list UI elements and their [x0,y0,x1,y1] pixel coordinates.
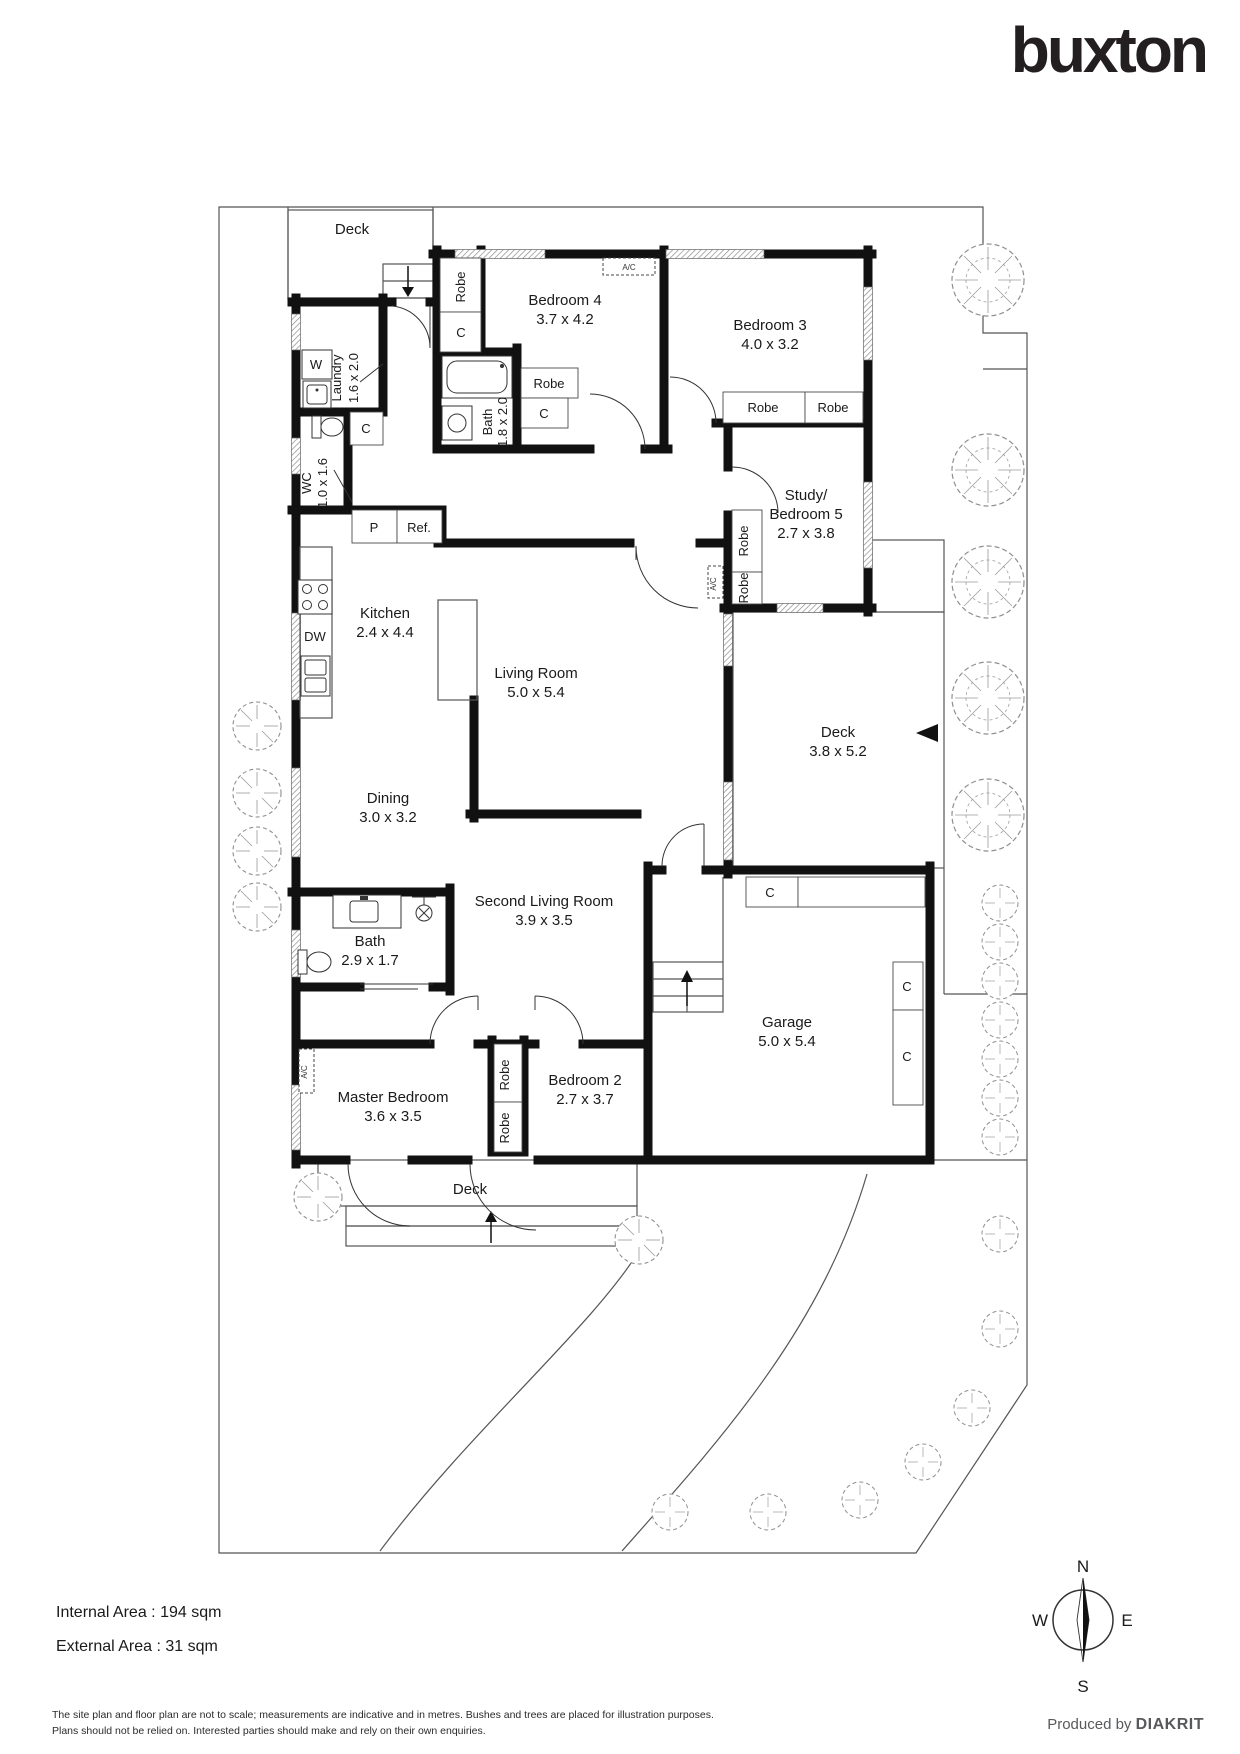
robe-label-study-1: Robe [736,525,751,556]
external-area: External Area : 31 sqm [56,1638,221,1656]
bath-top-dims: 1.8 x 2.0 [495,397,510,447]
robe-label-entry: Robe [453,271,468,302]
compass: N W E S [1032,1557,1133,1696]
study-label-1: Study/ [785,487,828,504]
toilet-icon [298,950,331,974]
fridge-label: Ref. [407,520,431,535]
wc-toilet-icon [312,416,343,438]
c-label-garage-right-1: C [902,979,911,994]
garage-steps [653,877,723,1012]
area-summary: Internal Area : 194 sqm External Area : … [56,1604,221,1672]
deck-right-label: Deck [821,724,856,741]
bedroom3-label: Bedroom 3 [733,317,806,334]
bedroom4-dims: 3.7 x 4.2 [536,311,594,328]
compass-south: S [1077,1677,1088,1696]
robe-label-bed3-2: Robe [817,400,848,415]
deck-bottom-label: Deck [453,1181,488,1198]
master-dims: 3.6 x 3.5 [364,1108,422,1125]
dining-label: Dining [367,790,410,807]
floorplan-page: buxton [0,0,1240,1754]
kitchen-island [438,600,477,700]
garage-dims: 5.0 x 5.4 [758,1033,816,1050]
entry-arrow-icon [916,724,938,742]
laundry-dims: 1.6 x 2.0 [346,353,361,403]
kitchen-sink-icon [301,656,330,696]
c-label-entry: C [456,325,465,340]
bedroom2-dims: 2.7 x 3.7 [556,1091,614,1108]
study-label-2: Bedroom 5 [769,506,842,523]
c-label-wc: C [361,421,370,436]
robe-label-study-2: Robe [736,572,751,603]
bath-top-label: Bath [480,409,495,436]
compass-east: E [1121,1611,1132,1630]
bedroom4-label: Bedroom 4 [528,292,601,309]
laundry-trough-icon [303,381,331,408]
washer-label: W [310,357,323,372]
garage-up-arrow-icon [681,970,693,1006]
disclaimer: The site plan and floor plan are not to … [52,1708,852,1740]
bedroom2-label: Bedroom 2 [548,1072,621,1089]
wc-label: WC [299,472,314,494]
cooktop-icon [298,580,332,614]
wc-dims: 1.0 x 1.6 [315,458,330,508]
walls [292,250,930,1164]
robe-label-master-2: Robe [497,1112,512,1143]
deck-bottom-area: Deck [318,1160,637,1246]
ac-label-bed4: A/C [622,263,636,272]
ac-label-master: A/C [300,1065,309,1079]
second-living-label: Second Living Room [475,893,613,910]
robe-label-master-1: Robe [497,1059,512,1090]
bath-lower-label: Bath [355,933,386,950]
ac-label-study: A/C [709,577,718,591]
robe-label-bed3-1: Robe [747,400,778,415]
vanity-icon [333,895,401,928]
deck-right-area: Deck 3.8 x 5.2 [733,540,944,868]
compass-west: W [1032,1611,1048,1630]
kitchen-dims: 2.4 x 4.4 [356,624,414,641]
storage-labels: Robe C C Robe C Robe Robe Robe Robe P Re… [304,271,912,1143]
bathtub-icon [442,356,512,398]
study-dims: 2.7 x 3.8 [777,525,835,542]
shower-icon [412,897,436,921]
pantry-label: P [370,520,379,535]
disclaimer-line-1: The site plan and floor plan are not to … [52,1708,852,1724]
garage-label: Garage [762,1014,812,1031]
internal-area: Internal Area : 194 sqm [56,1604,221,1622]
bedroom3-dims: 4.0 x 3.2 [741,336,799,353]
producer-name: DIAKRIT [1136,1716,1204,1733]
living-label: Living Room [494,665,577,682]
master-label: Master Bedroom [338,1089,449,1106]
produced-by: Produced by DIAKRIT [1047,1716,1204,1734]
laundry-label: Laundry [329,354,344,401]
c-label-bath: C [539,406,548,421]
dining-dims: 3.0 x 3.2 [359,809,417,826]
robe-label-bath: Robe [533,376,564,391]
deck-top-label: Deck [335,221,370,238]
c-label-garage-right-2: C [902,1049,911,1064]
second-living-dims: 3.9 x 3.5 [515,912,573,929]
floor-plan-svg: Deck Deck 3.8 x 5.2 Deck [0,0,1240,1754]
kitchen-label: Kitchen [360,605,410,622]
deck-right-dims: 3.8 x 5.2 [809,743,867,760]
deck-top-area: Deck [288,210,433,298]
produced-by-text: Produced by [1047,1716,1131,1733]
dishwasher-label: DW [304,629,326,644]
c-label-garage-top: C [765,885,774,900]
bath-top-sink-icon [442,406,472,440]
disclaimer-line-2: Plans should not be relied on. Intereste… [52,1724,852,1740]
bath-lower-dims: 2.9 x 1.7 [341,952,399,969]
compass-north: N [1077,1557,1089,1576]
living-dims: 5.0 x 5.4 [507,684,565,701]
